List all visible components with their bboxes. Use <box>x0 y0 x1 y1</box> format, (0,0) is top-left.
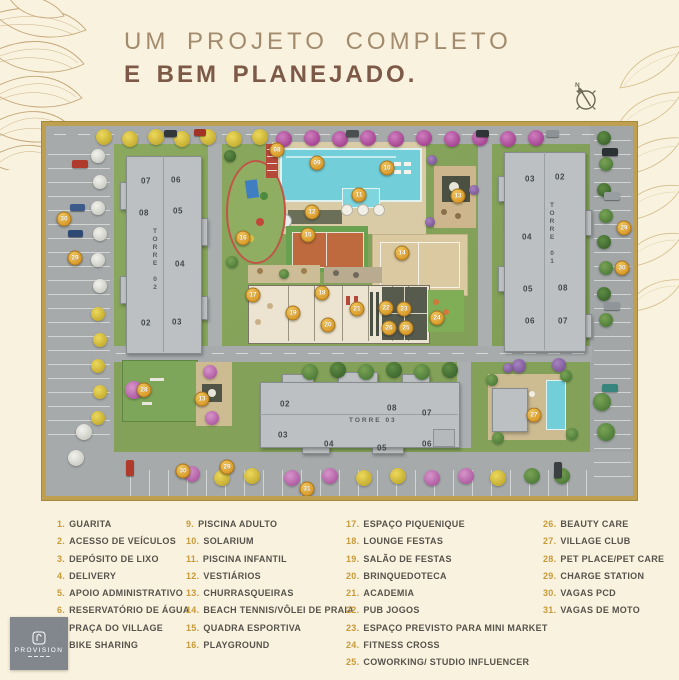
tree <box>91 149 105 163</box>
legend-item-number: 26. <box>543 519 556 529</box>
map-marker-15: 15 <box>301 228 316 243</box>
tree <box>91 253 105 267</box>
lane-dash <box>236 353 248 354</box>
tree <box>91 307 105 321</box>
legend-item-number: 20. <box>346 571 359 581</box>
legend-item-number: 28. <box>543 554 556 564</box>
tree <box>444 131 460 147</box>
tree <box>93 227 107 241</box>
map-marker-26: 26 <box>382 321 397 336</box>
unit-label-08: 08 <box>387 404 397 413</box>
tree <box>486 374 498 386</box>
car <box>602 148 618 156</box>
tree <box>226 256 238 268</box>
legend-item-number: 30. <box>543 588 556 598</box>
legend-item-1: 1.GUARITA <box>57 516 190 533</box>
service-structure <box>433 429 455 447</box>
tree <box>302 364 318 380</box>
stall-line <box>48 322 110 323</box>
car <box>164 130 177 137</box>
stall-line <box>320 470 321 496</box>
tree <box>304 130 320 146</box>
legend-item-label: RESERVATÓRIO DE ÁGUA <box>69 605 190 615</box>
legend-item-5: 5.APOIO ADMINISTRATIVO <box>57 585 190 602</box>
tree <box>593 393 611 411</box>
unit-label-02: 02 <box>555 173 565 182</box>
page-title: UM PROJETO COMPLETO E BEM PLANEJADO. <box>124 28 512 89</box>
legend-item-label: SOLARIUM <box>203 536 253 546</box>
lounge-seat <box>353 272 359 278</box>
provision-logo-icon <box>32 631 46 645</box>
brochure-page: UM PROJETO COMPLETO E BEM PLANEJADO. N 0… <box>0 0 679 680</box>
gym-equipment <box>376 292 379 336</box>
stall-line <box>594 364 631 365</box>
legend-item-12: 12.VESTIÁRIOS <box>186 568 354 585</box>
lane-dash <box>212 353 224 354</box>
legend-column-2: 9.PISCINA ADULTO10.SOLARIUM11.PISCINA IN… <box>186 516 354 654</box>
tree <box>524 468 540 484</box>
tree <box>93 279 107 293</box>
legend-item-15: 15.QUADRA ESPORTIVA <box>186 620 354 637</box>
legend-item-label: SALÃO DE FESTAS <box>363 554 451 564</box>
car <box>604 302 620 310</box>
unit-label-02: 02 <box>280 400 290 409</box>
tree <box>122 131 138 147</box>
patio-seat <box>441 209 447 215</box>
stall-line <box>594 280 631 281</box>
unit-label-05: 05 <box>377 444 387 453</box>
stall-line <box>149 470 150 496</box>
lane-dash <box>332 353 344 354</box>
map-marker-20: 20 <box>321 318 336 333</box>
legend-item-number: 21. <box>346 588 359 598</box>
tree <box>566 428 578 440</box>
legend-item-label: PRAÇA DO VILLAGE <box>69 623 163 633</box>
car <box>476 130 489 137</box>
tree <box>386 362 402 378</box>
stall-line <box>377 470 378 496</box>
unit-label-04: 04 <box>324 440 334 449</box>
compass-icon: N <box>566 78 604 116</box>
tree <box>512 359 526 373</box>
legend-item-22: 22.PUB JOGOS <box>346 602 548 619</box>
unit-label-07: 07 <box>141 177 151 186</box>
stall-line <box>48 196 110 197</box>
legend-item-label: BEACH TENNIS/VÔLEI DE PRAIA <box>203 605 354 615</box>
legend-item-label: PISCINA ADULTO <box>198 519 277 529</box>
lane-dash <box>476 353 488 354</box>
legend-item-number: 9. <box>186 519 194 529</box>
tree <box>244 468 260 484</box>
pet-item <box>142 402 152 405</box>
club-umbrella <box>529 391 535 397</box>
unit-label-03: 03 <box>278 431 288 440</box>
stall-line <box>548 470 549 496</box>
map-marker-10: 10 <box>380 161 395 176</box>
unit-label-06: 06 <box>422 440 432 449</box>
legend-item-number: 24. <box>346 640 359 650</box>
tree <box>416 130 432 146</box>
legend-item-24: 24.FITNESS CROSS <box>346 637 548 654</box>
legend-item-number: 25. <box>346 657 359 667</box>
legend-item-number: 10. <box>186 536 199 546</box>
legend-item-number: 16. <box>186 640 199 650</box>
stall-line <box>415 470 416 496</box>
legend-item-label: COWORKING/ STUDIO INFLUENCER <box>363 657 529 667</box>
legend-item-6: 6.RESERVATÓRIO DE ÁGUA <box>57 602 190 619</box>
stall-line <box>594 378 631 379</box>
legend-item-16: 16.PLAYGROUND <box>186 637 354 654</box>
club-building <box>492 388 528 432</box>
unit-label-05: 05 <box>523 285 533 294</box>
tree <box>597 423 615 441</box>
lane-dash <box>524 353 536 354</box>
map-marker-14: 14 <box>395 246 410 261</box>
legend-item-number: 2. <box>57 536 65 546</box>
legend-item-19: 19.SALÃO DE FESTAS <box>346 551 548 568</box>
legend-item-label: LOUNGE FESTAS <box>363 536 443 546</box>
tree <box>93 175 107 189</box>
tree <box>425 217 435 227</box>
tree <box>597 287 611 301</box>
provision-watermark: PROVISION <box>10 617 68 670</box>
car <box>346 130 359 137</box>
unit-label-05: 05 <box>173 207 183 216</box>
tree <box>93 333 107 347</box>
legend-item-30: 30.VAGAS PCD <box>543 585 664 602</box>
court-line <box>326 232 327 266</box>
tree <box>597 235 611 249</box>
lane-dash <box>582 134 594 135</box>
map-marker-29: 29 <box>68 251 83 266</box>
map-marker-16: 16 <box>236 231 251 246</box>
lane-dash <box>380 353 392 354</box>
pool-lane <box>286 156 396 158</box>
title-line-1: UM PROJETO COMPLETO <box>124 28 512 56</box>
lane-dash <box>308 353 320 354</box>
lane-dash <box>500 353 512 354</box>
map-marker-25: 25 <box>399 321 414 336</box>
legend-item-number: 31. <box>543 605 556 615</box>
legend-item-label: BIKE SHARING <box>69 640 138 650</box>
stall-line <box>453 470 454 496</box>
legend-item-label: GUARITA <box>69 519 111 529</box>
legend-item-number: 14. <box>186 605 199 615</box>
play-item <box>260 192 268 200</box>
legend-item-23: 23.ESPAÇO PREVISTO PARA MINI MARKET <box>346 620 548 637</box>
site-plan-map: 0809101112131415161718192021222326252427… <box>42 122 637 500</box>
stall-line <box>594 350 631 351</box>
tree <box>390 468 406 484</box>
toy-shelf <box>346 296 350 305</box>
lounge-seat <box>333 270 339 276</box>
map-marker-29: 29 <box>617 221 632 236</box>
tree <box>91 411 105 425</box>
car <box>602 384 618 392</box>
unit-label-07: 07 <box>422 409 432 418</box>
umbrella <box>373 204 385 216</box>
legend-item-8: 8.BIKE SHARING <box>57 637 190 654</box>
tree <box>414 364 430 380</box>
tower-label: TORRE 01 <box>549 202 556 266</box>
sun-lounger <box>404 170 411 174</box>
provision-logo-subline <box>28 656 50 657</box>
map-marker-13: 13 <box>451 189 466 204</box>
lane-dash <box>452 353 464 354</box>
unit-label-06: 06 <box>525 317 535 326</box>
map-marker-13: 13 <box>195 392 210 407</box>
map-marker-27: 27 <box>527 408 542 423</box>
legend-item-number: 29. <box>543 571 556 581</box>
net-line <box>418 242 419 286</box>
legend-item-number: 11. <box>186 554 199 564</box>
map-marker-22: 22 <box>379 301 394 316</box>
map-marker-18: 18 <box>315 286 330 301</box>
map-marker-17: 17 <box>246 288 261 303</box>
party-table <box>255 319 261 325</box>
legend-item-29: 29.CHARGE STATION <box>543 568 664 585</box>
tower-02 <box>126 156 202 354</box>
map-marker-09: 09 <box>310 156 325 171</box>
legend-item-number: 15. <box>186 623 199 633</box>
beach-court-line <box>380 242 460 288</box>
legend-item-label: VAGAS DE MOTO <box>560 605 640 615</box>
legend-item-label: BEAUTY CARE <box>560 519 628 529</box>
map-marker-29: 29 <box>220 460 235 475</box>
tree <box>356 470 372 486</box>
lane-dash <box>356 353 368 354</box>
tree <box>284 470 300 486</box>
legend-item-7: 7.PRAÇA DO VILLAGE <box>57 620 190 637</box>
legend-item-label: BRINQUEDOTECA <box>363 571 446 581</box>
legend-item-4: 4.DELIVERY <box>57 568 190 585</box>
stall-line <box>206 470 207 496</box>
tree <box>91 359 105 373</box>
legend-item-13: 13.CHURRASQUEIRAS <box>186 585 354 602</box>
legend-item-number: 12. <box>186 571 199 581</box>
stall-line <box>586 470 587 496</box>
tree <box>599 261 613 275</box>
tower-label: TORRE 02 <box>152 228 159 292</box>
unit-label-06: 06 <box>171 176 181 185</box>
tree <box>91 201 105 215</box>
unit-label-03: 03 <box>172 318 182 327</box>
lane-dash <box>78 134 90 135</box>
legend-item-9: 9.PISCINA ADULTO <box>186 516 354 533</box>
legend-item-11: 11.PISCINA INFANTIL <box>186 551 354 568</box>
sun-lounger <box>404 162 411 166</box>
legend-item-number: 23. <box>346 623 359 633</box>
legend-item-number: 1. <box>57 519 65 529</box>
legend-item-27: 27.VILLAGE CLUB <box>543 533 664 550</box>
tree <box>96 129 112 145</box>
legend-item-31: 31.VAGAS DE MOTO <box>543 602 664 619</box>
stall-line <box>48 168 110 169</box>
patio-seat <box>455 213 461 219</box>
legend-item-label: DELIVERY <box>69 571 116 581</box>
legend-item-label: PET PLACE/PET CARE <box>560 554 664 564</box>
map-marker-19: 19 <box>286 306 301 321</box>
tree <box>148 129 164 145</box>
title-line-2: E BEM PLANEJADO. <box>124 61 512 89</box>
lane-dash <box>572 353 584 354</box>
tree <box>458 468 474 484</box>
car <box>194 129 206 136</box>
legend-column-1: 1.GUARITA2.ACESSO DE VEÍCULOS3.DEPÓSITO … <box>57 516 190 654</box>
legend-item-label: PISCINA INFANTIL <box>203 554 287 564</box>
legend-item-label: ESPAÇO PIQUENIQUE <box>363 519 464 529</box>
map-marker-23: 23 <box>397 302 412 317</box>
tree <box>442 362 458 378</box>
legend-item-label: DEPÓSITO DE LIXO <box>69 554 159 564</box>
lane-dash <box>260 353 272 354</box>
tree <box>427 155 437 165</box>
tree <box>224 150 236 162</box>
lane-dash <box>318 134 330 135</box>
tree <box>322 468 338 484</box>
legend-item-26: 26.BEAUTY CARE <box>543 516 664 533</box>
tree <box>469 185 479 195</box>
tree <box>599 313 613 327</box>
map-marker-30: 30 <box>615 261 630 276</box>
legend-item-label: QUADRA ESPORTIVA <box>203 623 301 633</box>
legend-item-number: 3. <box>57 554 65 564</box>
stall-line <box>48 406 110 407</box>
lane-dash <box>284 353 296 354</box>
stall-line <box>339 470 340 496</box>
tower-01 <box>504 152 586 352</box>
unit-label-08: 08 <box>139 209 149 218</box>
sun-lounger <box>394 162 401 166</box>
gym-equipment <box>370 292 373 336</box>
provision-logo-text: PROVISION <box>15 647 64 654</box>
legend-item-number: 5. <box>57 588 65 598</box>
lane-dash <box>54 134 66 135</box>
legend-item-25: 25.COWORKING/ STUDIO INFLUENCER <box>346 654 548 671</box>
map-marker-30: 30 <box>176 464 191 479</box>
lane-dash <box>428 353 440 354</box>
room-divider <box>368 286 369 341</box>
legend-item-label: ACADEMIA <box>363 588 414 598</box>
stall-line <box>48 224 110 225</box>
legend-item-label: PLAYGROUND <box>203 640 269 650</box>
stall-line <box>594 476 631 477</box>
tree <box>279 269 289 279</box>
stall-line <box>168 470 169 496</box>
tower-02-spine <box>163 156 164 352</box>
room-divider <box>342 286 343 341</box>
legend-item-number: 6. <box>57 605 65 615</box>
map-marker-24: 24 <box>430 311 445 326</box>
stall-line <box>510 470 511 496</box>
map-marker-12: 12 <box>305 205 320 220</box>
legend-item-28: 28.PET PLACE/PET CARE <box>543 551 664 568</box>
legend-item-label: ESPAÇO PREVISTO PARA MINI MARKET <box>363 623 547 633</box>
legend-item-label: PUB JOGOS <box>363 605 419 615</box>
tree <box>360 130 376 146</box>
pet-item <box>150 378 164 381</box>
tower-label: TORRE 03 <box>349 417 397 424</box>
stall-line <box>48 378 110 379</box>
legend-item-label: FITNESS CROSS <box>363 640 439 650</box>
tree <box>599 157 613 171</box>
tree <box>492 432 504 444</box>
car <box>546 130 559 137</box>
stall-line <box>48 294 110 295</box>
legend-item-18: 18.LOUNGE FESTAS <box>346 533 548 550</box>
tree <box>490 470 506 486</box>
tree <box>330 362 346 378</box>
legend-item-number: 4. <box>57 571 65 581</box>
unit-label-04: 04 <box>175 260 185 269</box>
legend-column-3: 17.ESPAÇO PIQUENIQUE18.LOUNGE FESTAS19.S… <box>346 516 548 672</box>
party-table <box>267 303 273 309</box>
legend-column-4: 26.BEAUTY CARE27.VILLAGE CLUB28.PET PLAC… <box>543 516 664 620</box>
road-vertical <box>208 144 222 346</box>
tree <box>76 424 92 440</box>
tree <box>388 131 404 147</box>
tree <box>358 364 374 380</box>
gazebo-roof <box>208 389 216 397</box>
legend-item-3: 3.DEPÓSITO DE LIXO <box>57 551 190 568</box>
tree <box>560 370 572 382</box>
legend-item-14: 14.BEACH TENNIS/VÔLEI DE PRAIA <box>186 602 354 619</box>
fitness-item <box>433 299 439 305</box>
stall-line <box>594 182 631 183</box>
map-marker-31: 31 <box>300 482 315 497</box>
picnic-table <box>301 268 307 274</box>
legend-item-2: 2.ACESSO DE VEÍCULOS <box>57 533 190 550</box>
stall-line <box>282 470 283 496</box>
umbrella <box>341 204 353 216</box>
map-marker-21: 21 <box>350 302 365 317</box>
umbrella <box>357 204 369 216</box>
unit-label-02: 02 <box>141 319 151 328</box>
tree <box>599 209 613 223</box>
tower-01-spine <box>544 152 545 350</box>
car <box>554 462 562 478</box>
legend-item-label: VAGAS PCD <box>560 588 616 598</box>
picnic-table <box>257 268 263 274</box>
road-vertical <box>478 144 492 346</box>
car <box>126 460 134 476</box>
club-pool <box>546 380 566 430</box>
car <box>604 192 620 200</box>
stall-line <box>594 252 631 253</box>
stall-line <box>594 448 631 449</box>
tree <box>503 363 513 373</box>
legend-item-label: VILLAGE CLUB <box>560 536 630 546</box>
tree <box>500 131 516 147</box>
legend-item-label: CHARGE STATION <box>560 571 644 581</box>
unit-label-07: 07 <box>558 317 568 326</box>
legend-item-number: 19. <box>346 554 359 564</box>
legend-item-number: 17. <box>346 519 359 529</box>
legend-item-label: CHURRASQUEIRAS <box>203 588 293 598</box>
stall-line <box>263 470 264 496</box>
tree <box>252 129 268 145</box>
car <box>72 160 88 168</box>
map-marker-28: 28 <box>137 383 152 398</box>
play-structure <box>245 179 259 198</box>
legend-item-number: 13. <box>186 588 199 598</box>
tree <box>93 385 107 399</box>
stall-line <box>594 462 631 463</box>
car <box>68 230 83 237</box>
stall-line <box>594 336 631 337</box>
unit-label-03: 03 <box>525 175 535 184</box>
legend-item-label: ACESSO DE VEÍCULOS <box>69 536 176 546</box>
